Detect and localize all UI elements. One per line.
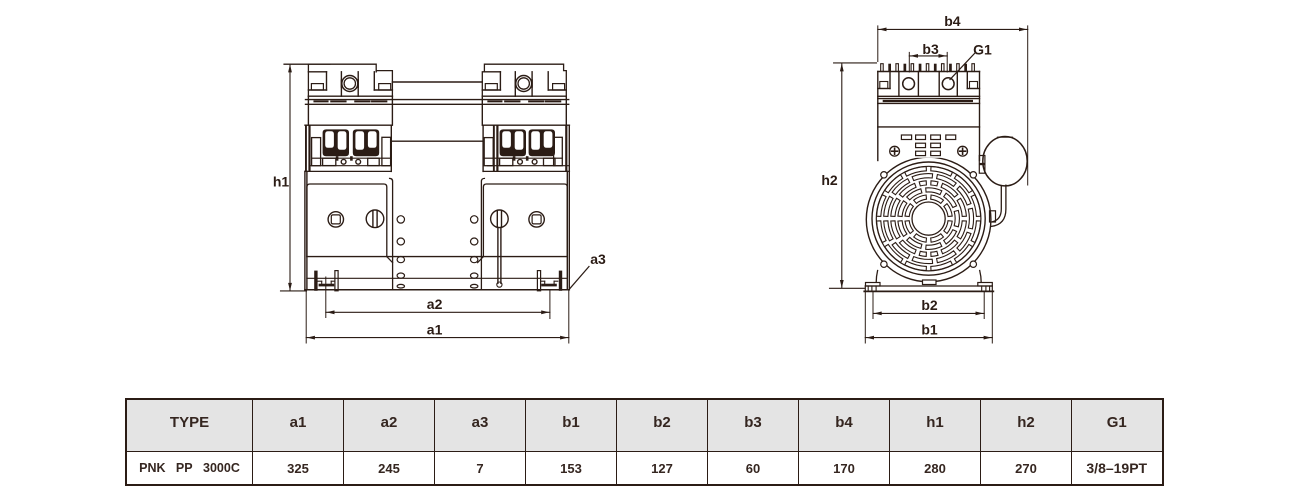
svg-text:h1: h1 [273, 174, 290, 190]
svg-text:a2: a2 [427, 296, 443, 312]
svg-text:G1: G1 [973, 42, 992, 58]
svg-text:b4: b4 [944, 13, 961, 29]
svg-text:a1: a1 [427, 321, 443, 337]
svg-text:b3: b3 [922, 41, 939, 57]
svg-text:a3: a3 [590, 251, 606, 267]
svg-text:b1: b1 [921, 321, 938, 337]
svg-text:h2: h2 [821, 172, 838, 188]
svg-text:b2: b2 [921, 297, 938, 313]
